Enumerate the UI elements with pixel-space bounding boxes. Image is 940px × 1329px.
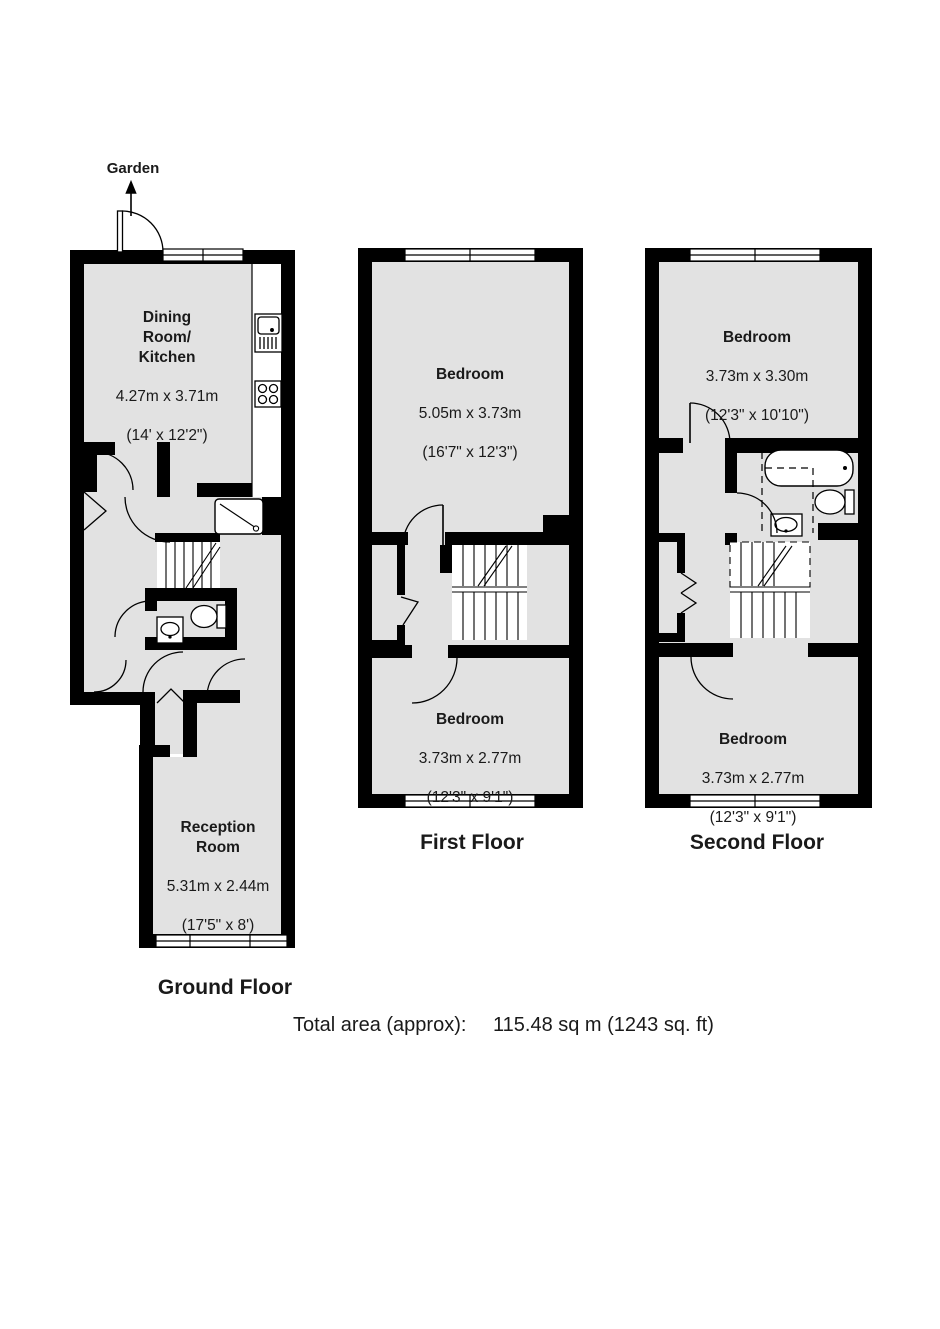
stairs-icon <box>730 542 810 638</box>
window-icon <box>163 249 243 261</box>
stairs-icon <box>452 545 527 640</box>
kitchen-fixtures <box>252 264 282 497</box>
room-name: Bedroom <box>419 710 522 730</box>
room-dims-metric: 4.27m x 3.71m <box>116 386 219 407</box>
toilet-icon <box>815 490 854 514</box>
window-icon <box>690 249 820 261</box>
room-name: Dining Room/ Kitchen <box>116 308 219 368</box>
hob-icon <box>255 381 281 407</box>
room-dims-imperial: (16'7" x 12'3") <box>419 442 522 463</box>
room-name: Reception Room <box>167 818 270 858</box>
room-name: Bedroom <box>705 328 809 348</box>
total-area-label: Total area (approx): <box>293 1014 466 1037</box>
shower-icon <box>215 499 263 534</box>
kitchen-sink-icon <box>255 314 282 352</box>
room-dims-metric: 3.73m x 2.77m <box>419 748 522 769</box>
side-door-recess <box>84 658 93 692</box>
room-label-first-bedroom2: Bedroom 3.73m x 2.77m (12'3" x 9'1") <box>419 692 522 826</box>
room-label-second-bedroom1: Bedroom 3.73m x 3.30m (12'3" x 10'10") <box>705 310 809 444</box>
second-floor-caption: Second Floor <box>690 831 824 855</box>
room-dims-imperial: (14' x 12'2") <box>116 425 219 446</box>
door-arc <box>122 211 163 252</box>
room-name: Bedroom <box>419 365 522 385</box>
ground-floor-caption: Ground Floor <box>158 976 292 1000</box>
room-dims-imperial: (12'3" x 10'10") <box>705 405 809 426</box>
room-dims-imperial: (12'3" x 9'1") <box>702 807 805 828</box>
room-dims-imperial: (17'5" x 8') <box>167 915 270 936</box>
room-label-first-bedroom1: Bedroom 5.05m x 3.73m (16'7" x 12'3") <box>419 347 522 481</box>
room-dims-imperial: (12'3" x 9'1") <box>419 787 522 808</box>
room-dims-metric: 3.73m x 3.30m <box>705 366 809 387</box>
room-label-dining-kitchen: Dining Room/ Kitchen 4.27m x 3.71m (14' … <box>116 290 219 464</box>
total-area-row: Total area (approx): 115.48 sq m (1243 s… <box>0 1014 940 1042</box>
garden-label: Garden <box>107 160 160 177</box>
stairs-icon <box>157 542 220 588</box>
room-name: Bedroom <box>702 730 805 750</box>
window-icon <box>405 249 535 261</box>
garden-door <box>118 211 164 252</box>
door-leaf <box>118 211 123 252</box>
sink-icon <box>157 617 183 643</box>
floorplan-graphics <box>0 0 940 1329</box>
total-area-value: 115.48 sq m (1243 sq. ft) <box>493 1014 714 1037</box>
room-dims-metric: 3.73m x 2.77m <box>702 768 805 789</box>
room-label-second-bedroom2: Bedroom 3.73m x 2.77m (12'3" x 9'1") <box>702 712 805 846</box>
floorplan-page: Garden Dining Room/ Kitchen 4.27m x 3.71… <box>0 0 940 1329</box>
first-floor-caption: First Floor <box>420 831 524 855</box>
room-dims-metric: 5.05m x 3.73m <box>419 403 522 424</box>
toilet-icon <box>191 605 226 628</box>
room-dims-metric: 5.31m x 2.44m <box>167 876 270 897</box>
room-label-reception: Reception Room 5.31m x 2.44m (17'5" x 8'… <box>167 800 270 954</box>
